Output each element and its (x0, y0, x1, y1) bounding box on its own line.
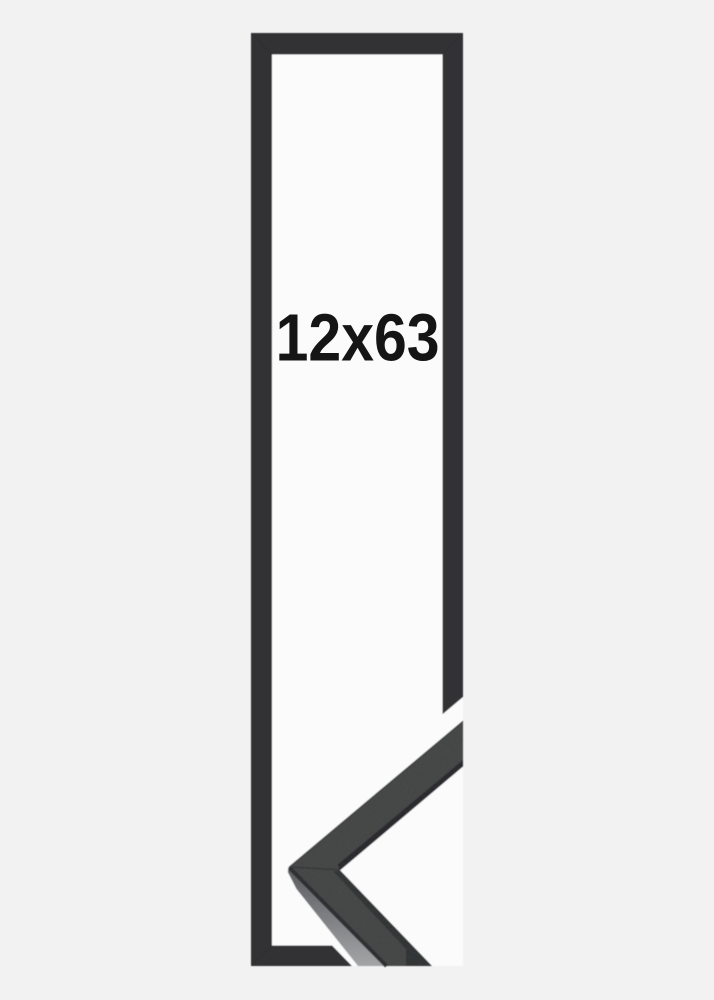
svg-text:12x63: 12x63 (276, 301, 440, 375)
